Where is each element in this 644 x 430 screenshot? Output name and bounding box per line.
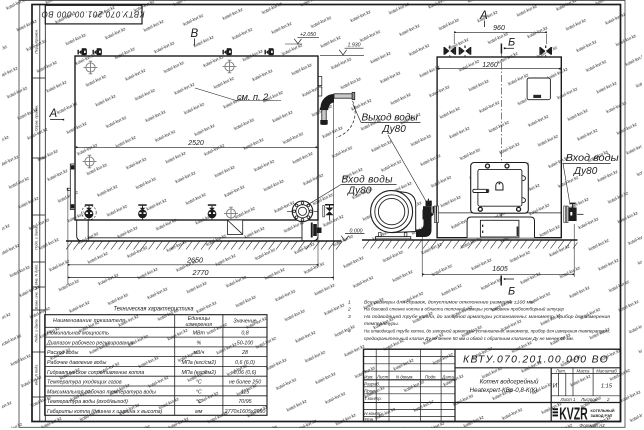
svg-text:не более 250: не более 250	[229, 380, 261, 386]
svg-text:Взам. инв. N: Взам. инв. N	[35, 287, 39, 309]
svg-text:Формат А3: Формат А3	[579, 423, 605, 428]
svg-text:0,6 (6,0): 0,6 (6,0)	[235, 360, 255, 366]
svg-text:Гидравлическое сопротивление к: Гидравлическое сопротивление котла	[47, 370, 144, 376]
svg-text:Котел водогрейный: Котел водогрейный	[480, 379, 539, 386]
svg-text:Б: Б	[508, 286, 515, 298]
svg-text:1260: 1260	[482, 62, 498, 69]
svg-text:измерения: измерения	[186, 322, 213, 328]
svg-text:KVZR: KVZR	[559, 405, 588, 424]
svg-text:И: И	[553, 383, 558, 390]
svg-text:4: 4	[348, 329, 351, 335]
svg-text:°С: °С	[196, 399, 202, 405]
svg-text:МПа (кгс/см2): МПа (кгс/см2)	[181, 360, 216, 366]
svg-text:Лист: Лист	[560, 397, 573, 402]
svg-text:2770: 2770	[192, 268, 209, 277]
svg-text:0.000: 0.000	[350, 228, 363, 234]
svg-text:Номинальная мощность: Номинальная мощность	[47, 331, 109, 337]
svg-text:Подп. и дата: Подп. и дата	[35, 227, 39, 250]
svg-text:Инв. N дубл.: Инв. N дубл.	[35, 264, 39, 285]
svg-text:В: В	[191, 28, 199, 40]
svg-text:Все размеры для справок, допус: Все размеры для справок, допустимое откл…	[364, 299, 535, 305]
svg-text:м3/ч: м3/ч	[193, 350, 204, 356]
svg-text:2650: 2650	[186, 256, 203, 265]
svg-text:МПа (кгс/см2): МПа (кгс/см2)	[181, 370, 216, 376]
svg-text:Утв.: Утв.	[364, 417, 374, 422]
svg-text:Габариты котла (длинна х ширин: Габариты котла (длинна х ширина х высота…	[47, 409, 163, 415]
svg-text:Ду80: Ду80	[573, 166, 598, 177]
svg-text:КВТУ.070.201.00.000 ВО: КВТУ.070.201.00.000 ВО	[463, 355, 609, 366]
svg-text:°С: °С	[196, 389, 202, 395]
svg-text:Лист: Лист	[376, 374, 389, 379]
svg-text:1605: 1605	[492, 266, 508, 273]
svg-text:А: А	[49, 108, 58, 120]
svg-text:2520: 2520	[187, 140, 204, 147]
svg-text:+2.050: +2.050	[300, 32, 316, 38]
svg-text:3: 3	[348, 314, 351, 320]
svg-text:Справ. примен.: Справ. примен.	[35, 105, 39, 132]
svg-text:Листов: Листов	[580, 397, 598, 402]
svg-text:Температура воды (вход/выход): Температура воды (вход/выход)	[47, 399, 128, 405]
svg-text:28: 28	[241, 350, 248, 356]
svg-text:Перв. примен.: Перв. примен.	[35, 29, 39, 54]
svg-text:1: 1	[348, 299, 351, 305]
svg-text:Диапазон рабочего регулировани: Диапазон рабочего регулирования	[46, 341, 134, 347]
svg-text:Инв. N подл.: Инв. N подл.	[35, 364, 39, 386]
svg-text:2770х1605х2050: 2770х1605х2050	[224, 409, 266, 415]
svg-text:N докум.: N докум.	[396, 374, 414, 379]
svg-text:2: 2	[606, 397, 610, 402]
svg-text:Подп. и дата: Подп. и дата	[35, 319, 39, 342]
svg-text:Пров.: Пров.	[364, 389, 376, 394]
svg-text:Вход воды: Вход воды	[342, 175, 394, 186]
svg-text:Вход воды: Вход воды	[566, 153, 620, 164]
svg-text:%: %	[196, 341, 201, 347]
svg-text:2: 2	[347, 307, 351, 313]
svg-text:предохранительный клапан Ду не: предохранительный клапан Ду не менее 50 …	[364, 335, 574, 342]
svg-text:Наименование показателя: Наименование показателя	[53, 318, 125, 324]
svg-text:Рабочее давление воды: Рабочее давление воды	[47, 360, 106, 366]
svg-text:Изм.: Изм.	[364, 374, 373, 379]
svg-text:Heatexpert-КВр-0,8-К(К): Heatexpert-КВр-0,8-К(К)	[470, 387, 538, 394]
svg-text:Техническая характеристика: Техническая характеристика	[114, 305, 195, 312]
svg-text:Лит.: Лит.	[555, 368, 566, 373]
svg-text:МВт: МВт	[193, 331, 206, 337]
svg-text:Максимальная рабочая температу: Максимальная рабочая температура воды	[47, 389, 156, 395]
svg-text:Температура уходящих газов: Температура уходящих газов	[47, 380, 122, 386]
svg-text:Масса: Масса	[577, 368, 591, 373]
svg-text:Т.контр.: Т.контр.	[364, 396, 382, 401]
svg-text:1.930: 1.930	[348, 43, 361, 49]
svg-text:Разраб.: Разраб.	[364, 382, 380, 387]
svg-text:А: А	[479, 10, 488, 22]
svg-text:1:15: 1:15	[601, 384, 613, 390]
svg-text:мм: мм	[195, 409, 203, 415]
svg-text:Значение: Значение	[233, 319, 256, 325]
svg-text:Расход воды: Расход воды	[47, 350, 78, 356]
svg-text:70/95: 70/95	[238, 399, 251, 405]
svg-text:Б: Б	[508, 37, 515, 49]
svg-text:температуры.: температуры.	[364, 322, 399, 327]
svg-text:Дата: Дата	[441, 374, 454, 379]
svg-text:0,06 (0,6): 0,06 (0,6)	[234, 370, 257, 376]
svg-text:960: 960	[493, 25, 505, 32]
svg-text:Ду80: Ду80	[382, 124, 407, 135]
svg-text:Ду80: Ду80	[347, 186, 372, 197]
svg-text:0,8: 0,8	[241, 331, 248, 337]
svg-text:На боковой стенке котла в обла: На боковой стенке котла в области топочн…	[364, 306, 564, 313]
svg-text:КОТЕЛЬНЫЙ: КОТЕЛЬНЫЙ	[591, 409, 615, 413]
svg-text:°С: °С	[196, 380, 202, 386]
svg-text:ЗАВОД РЭП: ЗАВОД РЭП	[591, 414, 613, 418]
svg-text:На подводящей трубе котла, до: На подводящей трубе котла, до запорной а…	[364, 313, 610, 320]
svg-text:На отводящей трубе котла, до з: На отводящей трубе котла, до запорной ар…	[364, 328, 610, 335]
svg-text:Выход воды: Выход воды	[362, 113, 419, 124]
svg-text:115: 115	[241, 389, 249, 395]
svg-text:КВТУ.070.201.00.000 ВО: КВТУ.070.201.00.000 ВО	[41, 10, 145, 19]
svg-text:Подп.: Подп.	[425, 374, 437, 379]
svg-text:Н.контр.: Н.контр.	[364, 411, 383, 416]
svg-text:50-100: 50-100	[237, 341, 254, 347]
svg-text:Масштаб: Масштаб	[596, 368, 617, 373]
